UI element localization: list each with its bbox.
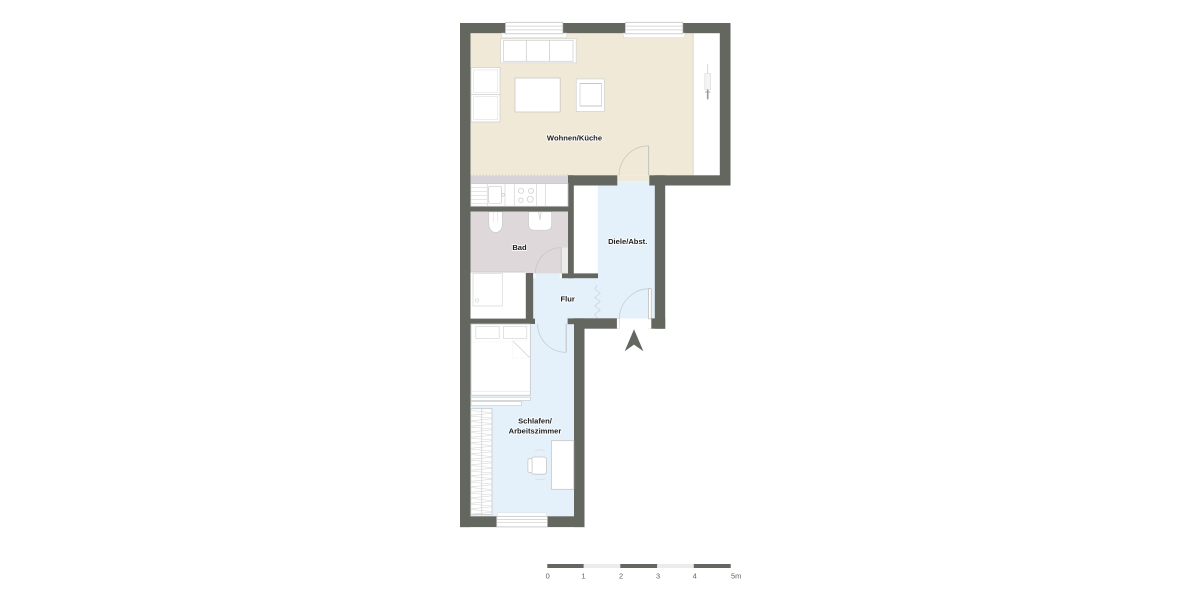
svg-text:Diele/Abst.: Diele/Abst. [608, 237, 647, 246]
svg-text:0: 0 [546, 572, 550, 581]
svg-text:5m: 5m [731, 572, 741, 581]
svg-text:4: 4 [693, 572, 697, 581]
svg-text:Wohnen/Küche: Wohnen/Küche [547, 133, 602, 142]
svg-text:Flur: Flur [561, 295, 575, 304]
svg-text:3: 3 [656, 572, 660, 581]
svg-text:2: 2 [619, 572, 623, 581]
svg-text:Schlafen/: Schlafen/ [518, 417, 553, 426]
svg-text:Arbeitszimmer: Arbeitszimmer [509, 427, 562, 436]
svg-text:Bad: Bad [512, 243, 527, 252]
svg-text:1: 1 [582, 572, 586, 581]
